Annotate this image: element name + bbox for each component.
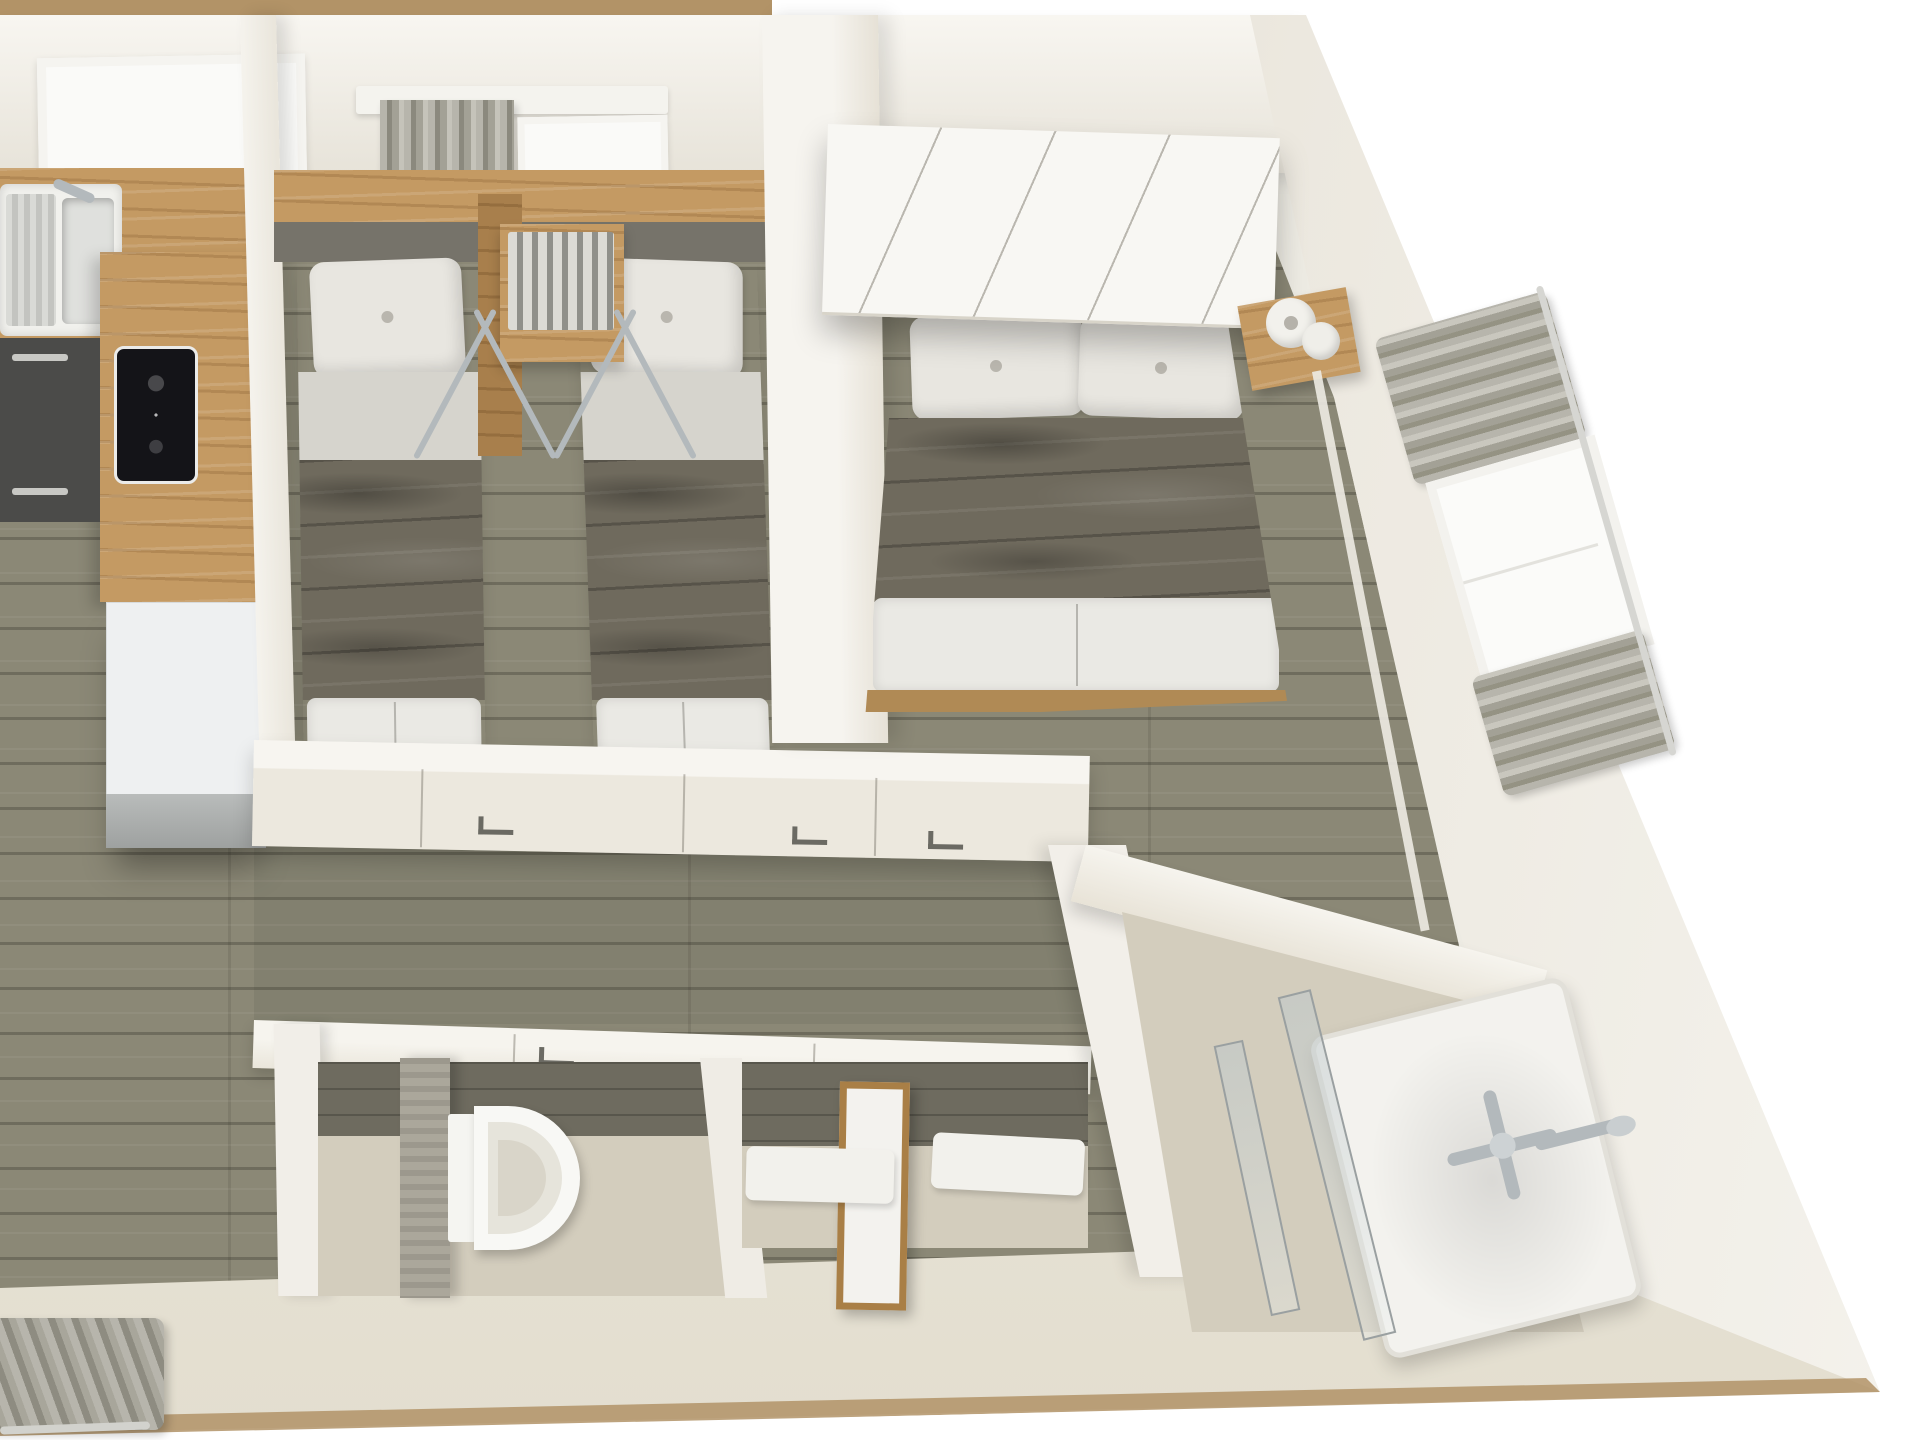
- window-divider: [1463, 543, 1598, 584]
- door-seam: [420, 769, 423, 847]
- wc-stone-partition: [400, 1058, 450, 1298]
- door-seam: [682, 774, 685, 852]
- pillow: [909, 311, 1085, 421]
- towel-core: [1284, 316, 1298, 330]
- induction-hob: [114, 346, 198, 484]
- roof-edge-top: [0, 0, 772, 16]
- wc-west-wall: [274, 1024, 325, 1296]
- mixer-cap: [1487, 1130, 1519, 1162]
- master-overhead-cabinet: [822, 124, 1280, 329]
- bed-duvet: [299, 460, 484, 700]
- bed-duvet: [865, 418, 1287, 602]
- rolled-towel: [1302, 322, 1340, 360]
- living-room-curtain: [0, 1318, 164, 1430]
- drying-rack-slats: [508, 232, 614, 330]
- bed-mattress-end: [873, 598, 1279, 692]
- kitchen-base-cabinets: [0, 338, 100, 522]
- bed-duvet: [584, 460, 772, 700]
- sink-drainer: [6, 194, 56, 326]
- cabinet-handle: [12, 488, 68, 495]
- pillow: [1077, 315, 1246, 421]
- bath-mat: [745, 1146, 894, 1204]
- floor-plan-render: [0, 0, 1920, 1440]
- cabinet-handle: [12, 354, 68, 361]
- twin-bed-left: [297, 252, 486, 746]
- wall-twin-master: [762, 15, 888, 743]
- pillow: [309, 257, 467, 378]
- sliding-door-handle: [478, 816, 513, 835]
- hallway-floor-shade: [254, 846, 1090, 1024]
- toilet-bowl: [474, 1106, 580, 1250]
- toilet-cistern: [448, 1114, 476, 1242]
- bath-mat: [931, 1132, 1086, 1196]
- toilet: [448, 1106, 580, 1250]
- vestibule-tiled-wall: [742, 1062, 1088, 1146]
